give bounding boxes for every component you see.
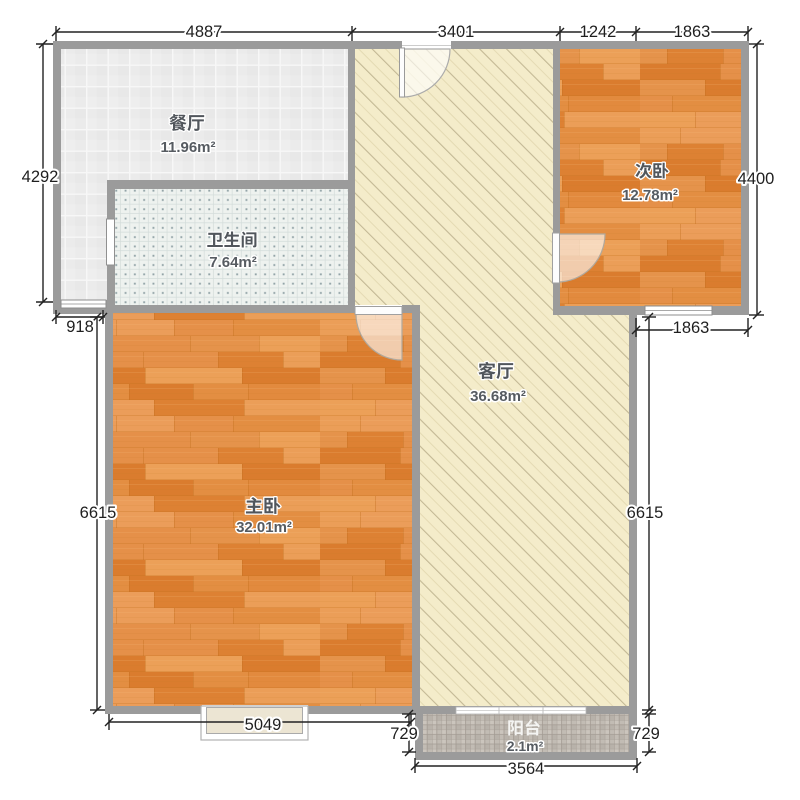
svg-text:5049: 5049 — [245, 716, 282, 734]
svg-text:2.1m²: 2.1m² — [507, 738, 544, 754]
svg-text:3564: 3564 — [508, 760, 545, 778]
svg-text:12.78m²: 12.78m² — [622, 187, 678, 204]
svg-text:4292: 4292 — [22, 168, 59, 186]
svg-text:918: 918 — [66, 318, 94, 336]
svg-text:1863: 1863 — [673, 319, 710, 337]
svg-text:4887: 4887 — [186, 23, 223, 41]
svg-text:3401: 3401 — [438, 23, 475, 41]
svg-text:32.01m²: 32.01m² — [236, 519, 292, 536]
svg-text:4400: 4400 — [738, 170, 775, 188]
svg-text:11.96m²: 11.96m² — [160, 139, 215, 156]
svg-text:6615: 6615 — [80, 504, 117, 522]
svg-text:1242: 1242 — [580, 23, 617, 41]
svg-text:7.64m²: 7.64m² — [209, 254, 257, 271]
svg-text:729: 729 — [632, 725, 660, 743]
svg-text:36.68m²: 36.68m² — [470, 388, 526, 405]
svg-text:6615: 6615 — [627, 504, 664, 522]
svg-text:1863: 1863 — [674, 23, 711, 41]
svg-text:729: 729 — [390, 725, 418, 743]
